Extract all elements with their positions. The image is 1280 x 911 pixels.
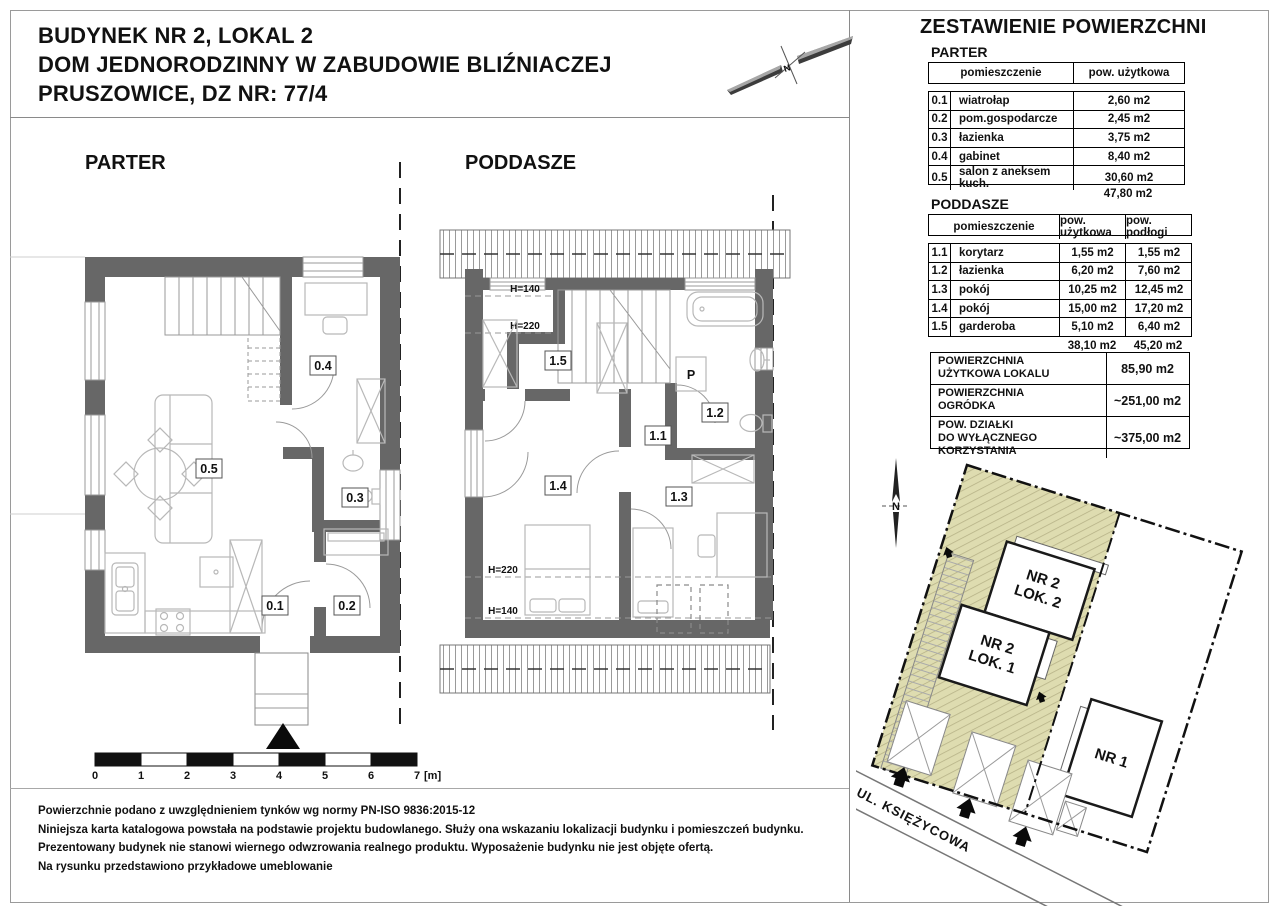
summary-table: POWIERZCHNIA UŻYTKOWA LOKALU 85,90 m2 PO… <box>930 352 1190 449</box>
area-summary-title: ZESTAWIENIE POWIERZCHNI <box>920 16 1206 39</box>
room-name-cell: łazienka <box>951 129 1074 147</box>
parter-plan: PARTER <box>10 152 400 749</box>
north-arrow-icon: N <box>882 458 910 548</box>
table-row: 1.1 korytarz 1,55 m2 1,55 m2 <box>929 244 1191 263</box>
table-header-row: pomieszczenie pow. użytkowa pow. podłogi <box>928 214 1192 236</box>
room-no-cell: 1.1 <box>929 244 951 262</box>
room-name-cell: łazienka <box>951 263 1060 281</box>
site-plan-drawing: N <box>856 456 1270 906</box>
title-line-2: DOM JEDNORODZINNY W ZABUDOWIE BLIŹNIACZE… <box>38 50 612 79</box>
scale-tick: 5 <box>322 770 328 782</box>
room-label: 1.3 <box>670 490 687 504</box>
total-area: 38,10 m2 <box>1059 340 1125 352</box>
table-row: 0.4 gabinet 8,40 m2 <box>929 148 1184 167</box>
street-label: UL. KSIĘŻYCOWA <box>856 785 973 856</box>
room-name-cell: pokój <box>951 281 1060 299</box>
total-floor: 45,20 m2 <box>1125 340 1191 352</box>
scale-tick: 4 <box>276 770 283 782</box>
compass-icon: N <box>725 28 855 108</box>
height-label: H=140 <box>510 284 540 295</box>
summary-label: POWIERZCHNIA OGRÓDKA <box>931 385 1107 416</box>
room-label: 0.1 <box>266 599 283 613</box>
scale-tick: 0 <box>92 770 98 782</box>
footer-line: Na rysunku przedstawiono przykładowe ume… <box>38 858 804 877</box>
room-area-cell: 6,20 m2 <box>1060 263 1126 281</box>
north-label: N <box>892 501 900 513</box>
room-name-cell: salon z aneksem kuch. <box>951 166 1074 190</box>
height-label: H=220 <box>488 565 518 576</box>
room-no-cell: 0.1 <box>929 92 951 110</box>
table-row: 1.5 garderoba 5,10 m2 6,40 m2 <box>929 318 1191 336</box>
footer-line: Prezentowany budynek nie stanowi wierneg… <box>38 839 804 858</box>
title-line-1: BUDYNEK NR 2, LOKAL 2 <box>38 21 612 50</box>
title-line-3: PRUSZOWICE, DZ NR: 77/4 <box>38 79 612 108</box>
poddasze-stairs <box>558 290 670 383</box>
scale-tick: 2 <box>184 770 190 782</box>
room-floor-cell: 6,40 m2 <box>1126 318 1192 336</box>
room-no-cell: 1.2 <box>929 263 951 281</box>
height-label: H=220 <box>510 321 540 332</box>
summary-row: POWIERZCHNIA UŻYTKOWA LOKALU 85,90 m2 <box>931 353 1189 385</box>
column-header: pomieszczenie <box>929 215 1060 239</box>
room-floor-cell: 7,60 m2 <box>1126 263 1192 281</box>
room-floor-cell: 1,55 m2 <box>1126 244 1192 262</box>
room-name-cell: korytarz <box>951 244 1060 262</box>
scale-tick: 3 <box>230 770 236 782</box>
summary-value: ~375,00 m2 <box>1107 417 1188 458</box>
room-area-cell: 2,60 m2 <box>1074 92 1184 110</box>
room-label: 1.2 <box>706 406 723 420</box>
room-label: 1.4 <box>549 479 566 493</box>
summary-value: ~251,00 m2 <box>1107 385 1188 416</box>
table-row: 0.1 wiatrołap 2,60 m2 <box>929 92 1184 111</box>
room-area-cell: 3,75 m2 <box>1074 129 1184 147</box>
room-label: 0.4 <box>314 359 331 373</box>
parter-plan-title: PARTER <box>85 152 166 174</box>
footer-line: Powierzchnie podano z uwzględnieniem tyn… <box>38 802 804 821</box>
column-header: pomieszczenie <box>929 63 1074 83</box>
room-label: 1.1 <box>649 429 666 443</box>
height-label: H=140 <box>488 606 518 617</box>
room-area-cell: 15,00 m2 <box>1060 300 1126 318</box>
room-area-cell: 30,60 m2 <box>1074 166 1184 190</box>
room-name-cell: pom.gospodarcze <box>951 111 1074 129</box>
poddasze-area-table: pomieszczenie pow. użytkowa pow. podłogi… <box>928 214 1192 356</box>
table-row: 0.5 salon z aneksem kuch. 30,60 m2 <box>929 166 1184 184</box>
parter-furniture <box>105 283 388 635</box>
parter-area-table: pomieszczenie pow. użytkowa 0.1 wiatroła… <box>928 62 1185 204</box>
summary-label: POWIERZCHNIA UŻYTKOWA LOKALU <box>931 353 1107 384</box>
room-label: 0.2 <box>338 599 355 613</box>
room-name-cell: wiatrołap <box>951 92 1074 110</box>
scale-tick: 1 <box>138 770 144 782</box>
entry-vestibule <box>255 653 308 725</box>
table-row: 1.4 pokój 15,00 m2 17,20 m2 <box>929 300 1191 319</box>
room-no-cell: 0.3 <box>929 129 951 147</box>
room-area-cell: 2,45 m2 <box>1074 111 1184 129</box>
room-floor-cell: 12,45 m2 <box>1126 281 1192 299</box>
table-row: 0.2 pom.gospodarcze 2,45 m2 <box>929 111 1184 130</box>
summary-row: POWIERZCHNIA OGRÓDKA ~251,00 m2 <box>931 385 1189 417</box>
scale-tick: 7 <box>414 770 420 782</box>
scale-tick: 6 <box>368 770 374 782</box>
summary-label: POW. DZIAŁKI DO WYŁĄCZNEGO KORZYSTANIA <box>931 417 1107 458</box>
room-name-cell: gabinet <box>951 148 1074 166</box>
catalog-card-page: BUDYNEK NR 2, LOKAL 2 DOM JEDNORODZINNY … <box>0 0 1280 911</box>
room-area-cell: 1,55 m2 <box>1060 244 1126 262</box>
parter-section-label: PARTER <box>931 44 988 60</box>
entrance-triangle-marker <box>266 723 300 749</box>
column-header: pow. użytkowa <box>1074 63 1184 83</box>
room-no-cell: 1.4 <box>929 300 951 318</box>
room-area-cell: 10,25 m2 <box>1060 281 1126 299</box>
room-no-cell: 0.5 <box>929 166 951 190</box>
room-no-cell: 0.2 <box>929 111 951 129</box>
room-no-cell: 1.3 <box>929 281 951 299</box>
total-area: 47,80 m2 <box>1073 188 1183 200</box>
room-no-cell: 1.5 <box>929 318 951 336</box>
poddasze-section-label: PODDASZE <box>931 196 1009 212</box>
table-header-row: pomieszczenie pow. użytkowa <box>928 62 1185 84</box>
floor-plans-drawing: PARTER <box>10 117 850 788</box>
room-name-cell: pokój <box>951 300 1060 318</box>
room-name-cell: garderoba <box>951 318 1060 336</box>
room-area-cell: 8,40 m2 <box>1074 148 1184 166</box>
scale-unit: [m] <box>424 770 441 782</box>
summary-value: 85,90 m2 <box>1107 353 1188 384</box>
room-label: 0.5 <box>200 462 217 476</box>
room-area-cell: 5,10 m2 <box>1060 318 1126 336</box>
room-label: 1.5 <box>549 354 566 368</box>
washer-label: P <box>687 368 695 382</box>
table-row: 1.3 pokój 10,25 m2 12,45 m2 <box>929 281 1191 300</box>
room-no-cell: 0.4 <box>929 148 951 166</box>
parter-stairs <box>165 277 280 401</box>
room-floor-cell: 17,20 m2 <box>1126 300 1192 318</box>
title-block: BUDYNEK NR 2, LOKAL 2 DOM JEDNORODZINNY … <box>38 21 612 108</box>
poddasze-plan-title: PODDASZE <box>465 152 576 174</box>
table-row: 1.2 łazienka 6,20 m2 7,60 m2 <box>929 263 1191 282</box>
table-row: 0.3 łazienka 3,75 m2 <box>929 129 1184 148</box>
poddasze-plan: PODDASZE <box>440 152 790 730</box>
footer-divider <box>10 788 849 789</box>
room-label: 0.3 <box>346 491 363 505</box>
footer-line: Niniejsza karta katalogowa powstała na p… <box>38 821 804 840</box>
poddasze-doors <box>483 385 715 549</box>
summary-row: POW. DZIAŁKI DO WYŁĄCZNEGO KORZYSTANIA ~… <box>931 417 1189 448</box>
footer-notes: Powierzchnie podano z uwzględnieniem tyn… <box>38 802 804 876</box>
column-header: pow. użytkowa <box>1060 215 1126 239</box>
column-header: pow. podłogi <box>1126 215 1192 239</box>
scale-bar: 0 1 2 3 4 5 6 7 [m] <box>92 753 442 782</box>
